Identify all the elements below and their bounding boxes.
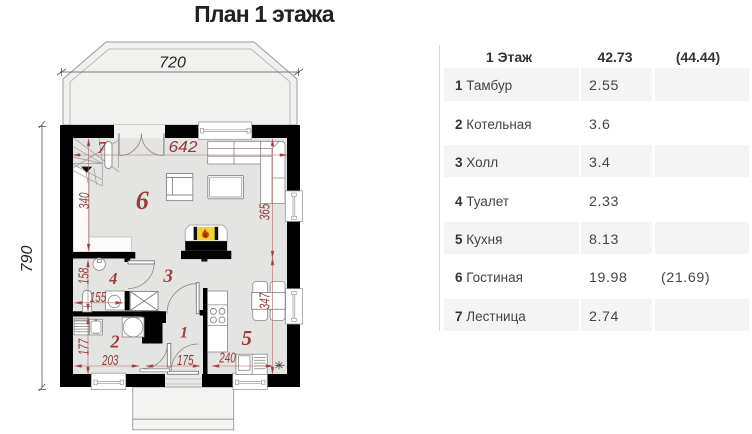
svg-text:365: 365 bbox=[258, 203, 274, 220]
svg-text:7: 7 bbox=[97, 138, 107, 157]
svg-text:340: 340 bbox=[77, 192, 93, 209]
svg-text:177: 177 bbox=[77, 338, 93, 355]
svg-text:790: 790 bbox=[19, 246, 36, 273]
svg-text:158: 158 bbox=[77, 268, 93, 285]
svg-text:720: 720 bbox=[159, 55, 186, 72]
svg-text:175: 175 bbox=[177, 353, 194, 369]
svg-text:6: 6 bbox=[136, 186, 149, 215]
svg-text:155: 155 bbox=[90, 290, 107, 306]
svg-text:1: 1 bbox=[180, 325, 188, 342]
svg-text:203: 203 bbox=[101, 353, 118, 369]
svg-text:347: 347 bbox=[258, 292, 274, 309]
svg-text:642: 642 bbox=[169, 139, 198, 156]
svg-text:240: 240 bbox=[219, 351, 236, 367]
svg-text:2: 2 bbox=[110, 332, 120, 352]
svg-text:4: 4 bbox=[108, 269, 117, 288]
svg-text:5: 5 bbox=[242, 326, 253, 350]
svg-text:3: 3 bbox=[163, 266, 174, 287]
